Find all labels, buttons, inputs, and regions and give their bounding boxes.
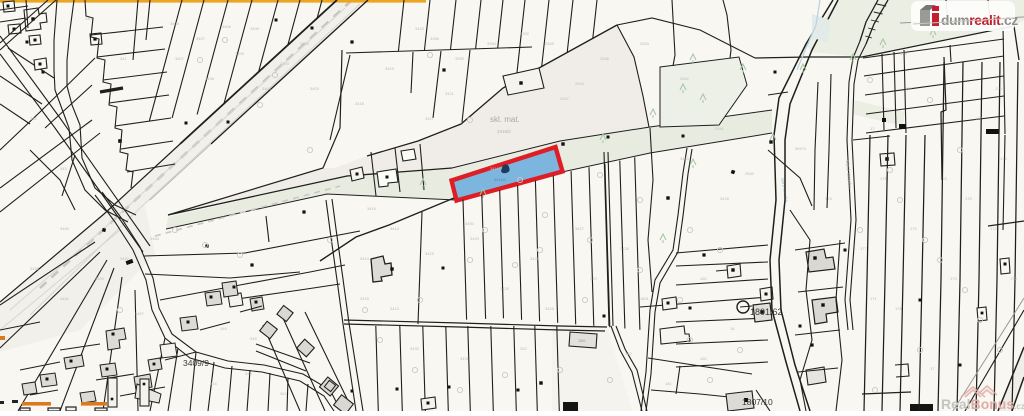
- svg-text:176: 176: [940, 176, 947, 181]
- svg-text:3415: 3415: [367, 206, 377, 211]
- svg-text:3392: 3392: [520, 31, 530, 36]
- svg-text:342: 342: [30, 116, 37, 121]
- svg-text:3421: 3421: [445, 91, 455, 96]
- svg-text:2543: 2543: [640, 41, 650, 46]
- svg-text:179: 179: [995, 86, 1002, 91]
- svg-text:3459: 3459: [95, 276, 105, 281]
- svg-text:3414: 3414: [360, 256, 370, 261]
- svg-text:1801/62: 1801/62: [750, 307, 783, 317]
- svg-text:341: 341: [120, 56, 127, 61]
- svg-text:3419: 3419: [385, 66, 395, 71]
- svg-text:3460: 3460: [60, 226, 70, 231]
- svg-text:3426: 3426: [620, 246, 630, 251]
- svg-text:3404: 3404: [280, 61, 290, 66]
- svg-text:3428: 3428: [530, 256, 540, 261]
- svg-text:3403: 3403: [310, 86, 320, 91]
- svg-text:2546: 2546: [600, 56, 610, 61]
- svg-text:176: 176: [895, 306, 902, 311]
- svg-text:178: 178: [905, 86, 912, 91]
- svg-text:343: 343: [60, 166, 67, 171]
- svg-text:3440: 3440: [680, 156, 690, 161]
- svg-text:344: 344: [210, 381, 217, 386]
- svg-text:3461: 3461: [60, 296, 70, 301]
- svg-text:252: 252: [520, 346, 527, 351]
- svg-text:2542: 2542: [680, 76, 690, 81]
- svg-text:3457: 3457: [135, 311, 145, 316]
- svg-text:3416/2: 3416/2: [490, 166, 503, 171]
- svg-text:174: 174: [1000, 156, 1007, 161]
- svg-text:3428: 3428: [545, 306, 555, 311]
- svg-text:3405: 3405: [235, 51, 245, 56]
- svg-text:3414: 3414: [390, 226, 400, 231]
- svg-text:177: 177: [975, 116, 982, 121]
- svg-text:3415: 3415: [425, 251, 435, 256]
- svg-text:346: 346: [220, 326, 227, 331]
- svg-text:3427: 3427: [575, 226, 585, 231]
- svg-text:3462: 3462: [120, 256, 130, 261]
- svg-text:340: 340: [85, 16, 92, 21]
- svg-text:172: 172: [990, 226, 997, 231]
- svg-text:3413: 3413: [390, 306, 400, 311]
- svg-text:3406: 3406: [205, 76, 215, 81]
- svg-text:173: 173: [1010, 276, 1017, 281]
- svg-text:3417: 3417: [425, 116, 435, 121]
- svg-text:3433: 3433: [360, 296, 370, 301]
- svg-text:36970: 36970: [795, 146, 807, 151]
- svg-text:1807/10: 1807/10: [742, 397, 773, 407]
- svg-text:2544: 2544: [575, 81, 585, 86]
- svg-text:17: 17: [930, 366, 935, 371]
- svg-text:3418: 3418: [355, 101, 365, 106]
- svg-text:175: 175: [880, 176, 887, 181]
- svg-text:1801: 1801: [640, 296, 650, 301]
- svg-text:3458: 3458: [30, 266, 40, 271]
- svg-text:3463: 3463: [150, 236, 160, 241]
- svg-text:3439: 3439: [720, 196, 730, 201]
- svg-text:2540: 2540: [745, 171, 755, 176]
- svg-text:3432: 3432: [410, 346, 420, 351]
- svg-text:18: 18: [730, 326, 735, 331]
- svg-text:17: 17: [870, 126, 875, 131]
- svg-text:3404: 3404: [262, 86, 272, 91]
- svg-text:180: 180: [700, 356, 707, 361]
- svg-text:181: 181: [665, 381, 672, 386]
- svg-text:3407: 3407: [175, 56, 185, 61]
- svg-text:3416/1: 3416/1: [494, 177, 507, 182]
- svg-text:2547: 2547: [560, 96, 570, 101]
- svg-text:182: 182: [625, 351, 632, 356]
- svg-text:3406: 3406: [222, 24, 232, 29]
- svg-text:174: 174: [910, 226, 917, 231]
- svg-text:3394: 3394: [487, 41, 497, 46]
- svg-text:3407: 3407: [196, 36, 206, 41]
- svg-text:3429: 3429: [500, 286, 510, 291]
- svg-text:2561: 2561: [578, 339, 586, 343]
- svg-text:180: 180: [700, 276, 707, 281]
- svg-text:3416/2: 3416/2: [497, 129, 511, 134]
- svg-text:3420: 3420: [415, 26, 425, 31]
- svg-text:2545: 2545: [545, 41, 555, 46]
- svg-text:3431: 3431: [460, 356, 470, 361]
- svg-text:342: 342: [280, 391, 287, 396]
- svg-text:3408: 3408: [170, 21, 180, 26]
- svg-text:3396: 3396: [430, 36, 440, 41]
- svg-text:178: 178: [825, 196, 832, 201]
- svg-text:3429: 3429: [470, 236, 480, 241]
- svg-text:3409/9: 3409/9: [183, 358, 209, 368]
- svg-text:RealBonus.cz: RealBonus.cz: [941, 396, 1024, 411]
- svg-text:173: 173: [950, 276, 957, 281]
- svg-text:3430: 3430: [465, 221, 475, 226]
- svg-text:171: 171: [870, 296, 877, 301]
- svg-text:178: 178: [900, 51, 907, 56]
- svg-text:skl. mat.: skl. mat.: [490, 115, 520, 124]
- svg-text:342: 342: [590, 276, 597, 281]
- svg-text:343: 343: [245, 371, 252, 376]
- svg-text:175: 175: [965, 196, 972, 201]
- svg-text:3395: 3395: [455, 56, 465, 61]
- svg-text:3405: 3405: [250, 26, 260, 31]
- svg-text:2541: 2541: [715, 126, 725, 131]
- svg-text:3403: 3403: [300, 41, 310, 46]
- svg-text:345: 345: [250, 336, 257, 341]
- svg-text:177: 177: [860, 246, 867, 251]
